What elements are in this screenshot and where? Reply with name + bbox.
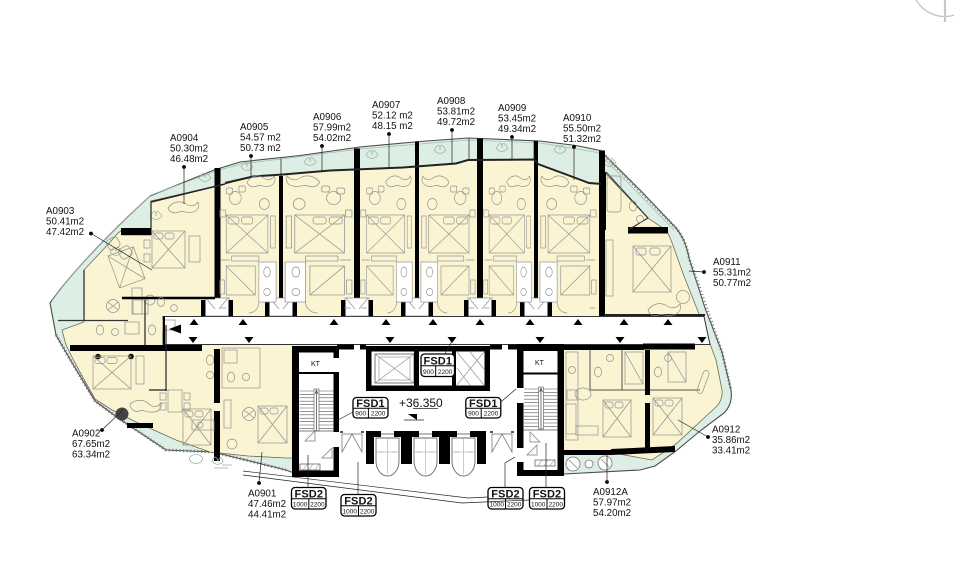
svg-text:A0907: A0907 bbox=[372, 100, 400, 111]
svg-text:KT: KT bbox=[535, 360, 545, 367]
svg-text:33.41m2: 33.41m2 bbox=[712, 446, 750, 457]
svg-text:55.50m2: 55.50m2 bbox=[563, 124, 601, 135]
svg-text:A0912: A0912 bbox=[712, 425, 740, 436]
svg-text:2200: 2200 bbox=[360, 509, 375, 516]
svg-text:FSD1: FSD1 bbox=[356, 398, 385, 410]
svg-text:57.97m2: 57.97m2 bbox=[593, 498, 631, 509]
svg-text:50.30m2: 50.30m2 bbox=[170, 144, 208, 155]
svg-text:63.34m2: 63.34m2 bbox=[72, 450, 110, 461]
svg-text:A0901: A0901 bbox=[248, 489, 276, 500]
svg-text:900: 900 bbox=[423, 369, 434, 376]
svg-text:47.42m2: 47.42m2 bbox=[46, 227, 84, 238]
svg-text:FSD2: FSD2 bbox=[533, 489, 562, 501]
svg-text:A0911: A0911 bbox=[713, 257, 741, 268]
svg-text:FSD2: FSD2 bbox=[295, 489, 324, 501]
svg-text:57.99m2: 57.99m2 bbox=[313, 123, 351, 134]
svg-text:2200: 2200 bbox=[438, 369, 453, 376]
svg-text:49.72m2: 49.72m2 bbox=[437, 117, 475, 128]
svg-text:49.34m2: 49.34m2 bbox=[498, 124, 536, 135]
svg-text:KT: KT bbox=[311, 361, 321, 368]
svg-text:+36.350: +36.350 bbox=[399, 396, 443, 410]
svg-text:54.02m2: 54.02m2 bbox=[313, 133, 351, 144]
svg-text:A0903: A0903 bbox=[46, 206, 75, 217]
svg-text:A0912A: A0912A bbox=[593, 487, 628, 498]
svg-text:2200: 2200 bbox=[549, 502, 564, 509]
svg-text:46.48m2: 46.48m2 bbox=[170, 154, 208, 165]
svg-text:50.77m2: 50.77m2 bbox=[713, 278, 751, 289]
svg-text:A0909: A0909 bbox=[498, 103, 526, 114]
svg-text:1000: 1000 bbox=[343, 509, 358, 516]
svg-text:A0902: A0902 bbox=[72, 429, 100, 440]
svg-text:A0908: A0908 bbox=[437, 96, 466, 107]
svg-text:52.12 m2: 52.12 m2 bbox=[372, 111, 413, 122]
svg-text:A0910: A0910 bbox=[563, 113, 592, 124]
svg-text:54.57 m2: 54.57 m2 bbox=[240, 133, 281, 144]
svg-text:48.15 m2: 48.15 m2 bbox=[372, 121, 413, 132]
svg-text:47.46m2: 47.46m2 bbox=[248, 499, 286, 510]
svg-text:54.20m2: 54.20m2 bbox=[593, 508, 631, 519]
svg-text:A0905: A0905 bbox=[240, 122, 269, 133]
svg-text:2200: 2200 bbox=[371, 411, 386, 418]
svg-text:53.81m2: 53.81m2 bbox=[437, 107, 475, 118]
svg-text:51.32m2: 51.32m2 bbox=[563, 134, 601, 145]
svg-text:FSD2: FSD2 bbox=[491, 489, 520, 501]
svg-text:53.45m2: 53.45m2 bbox=[498, 114, 536, 125]
svg-text:FSD2: FSD2 bbox=[344, 496, 373, 508]
svg-text:A0906: A0906 bbox=[313, 112, 342, 123]
svg-text:2200: 2200 bbox=[310, 502, 325, 509]
svg-text:55.31m2: 55.31m2 bbox=[713, 268, 751, 279]
svg-text:FSD1: FSD1 bbox=[424, 356, 453, 368]
svg-text:44.41m2: 44.41m2 bbox=[248, 510, 286, 521]
svg-text:50.41m2: 50.41m2 bbox=[46, 217, 84, 228]
svg-text:35.86m2: 35.86m2 bbox=[712, 435, 750, 446]
svg-text:FSD1: FSD1 bbox=[469, 398, 498, 410]
svg-text:900: 900 bbox=[355, 411, 366, 418]
svg-text:1000: 1000 bbox=[293, 502, 308, 509]
svg-text:67.65m2: 67.65m2 bbox=[72, 439, 110, 450]
svg-text:900: 900 bbox=[468, 411, 479, 418]
svg-text:1000: 1000 bbox=[531, 502, 546, 509]
svg-text:2200: 2200 bbox=[484, 411, 499, 418]
svg-text:2200: 2200 bbox=[507, 502, 522, 509]
svg-text:50.73 m2: 50.73 m2 bbox=[240, 143, 281, 154]
svg-text:1000: 1000 bbox=[490, 502, 505, 509]
svg-text:A0904: A0904 bbox=[170, 133, 199, 144]
